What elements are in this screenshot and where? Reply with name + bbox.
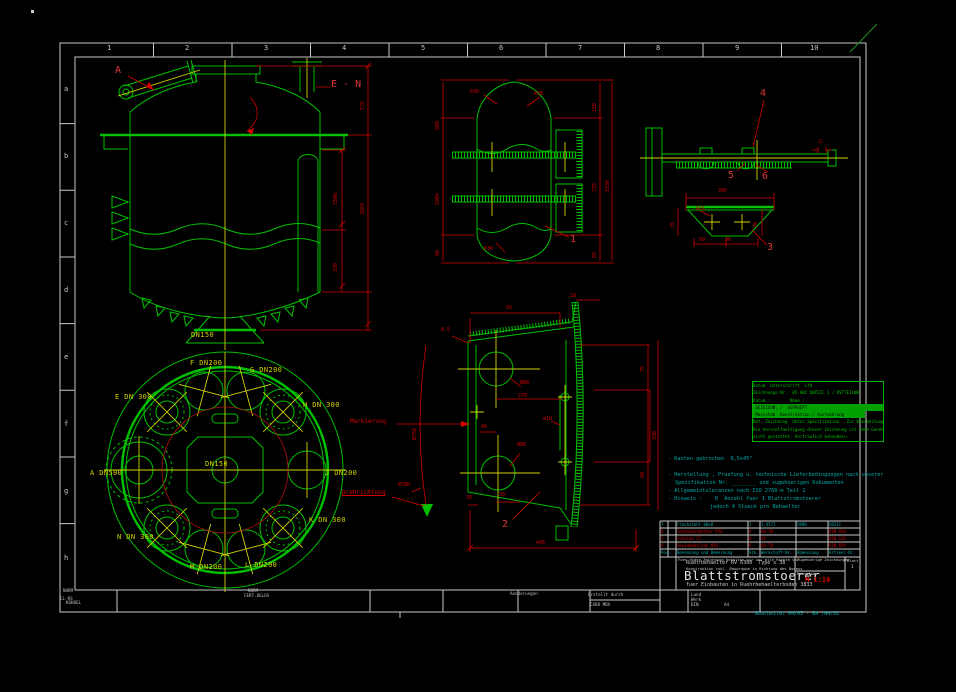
note-line: - Herstellung , Pruefung u. technische L…	[668, 471, 868, 479]
sheet-number: 1	[851, 566, 854, 571]
bom-cell: 8	[748, 535, 760, 542]
bom-cell: Flachstahl 60x8	[676, 521, 748, 528]
bom-cell: 8	[748, 528, 760, 535]
note-line: Spezifikation Nr. ________ und zugehoeri…	[668, 479, 868, 487]
bom-cell: 5880	[796, 521, 828, 528]
bom-cell: 1.4571	[760, 521, 796, 528]
bom-cell: DIN 934	[828, 528, 860, 535]
bom-cell: A4	[760, 535, 796, 542]
bom-cell	[796, 535, 828, 542]
note-line: - Kanten gebrochen 0,5x45°	[668, 455, 868, 463]
bom-cell: 7	[660, 521, 676, 528]
bom-cell: 8	[748, 542, 760, 549]
bom-cell: Scheibe 17	[676, 535, 748, 542]
approval-stamp: Datum Unterschrift LfdZeichnungs-Nr. 05-…	[752, 381, 884, 442]
bom-header-cell: Werkstoff-Nr.	[760, 549, 796, 557]
stamp-line: Zeichnungs-Nr. 05-ABC DWTEIL 1 / DVTTEIL…	[753, 389, 883, 396]
bom-header-cell: Stk.	[748, 549, 760, 557]
titleblock-related-drawings: Zugehoerige Zeichnungen	[797, 558, 850, 562]
stamp-line: Ref. Zeichnung Unter Spezifikation Zur B…	[753, 418, 883, 425]
bom-header-cell: Artikel-Nr.	[828, 549, 860, 557]
stamp-line: nicht gestattet. Vertraulich behandeln.	[753, 433, 883, 440]
bom-cell: 6	[660, 528, 676, 535]
drawing-subtitle: fuer Einbauten in Ruehrbehaelterboden 38…	[686, 583, 812, 588]
note-line: - Allgemeintoleranzen nach ISO 2768-m Te…	[668, 487, 868, 495]
bom-cell: 68211	[828, 521, 860, 528]
cad-drawing-sheet: DN150F DN200G DN200E DN 300H DN 300A DN5…	[0, 0, 956, 692]
bom-cell: DIN 939	[828, 542, 860, 549]
bom-row: 7Flachstahl 60x821.4571588068211	[660, 521, 860, 528]
bom-cell: 5	[660, 535, 676, 542]
bom-table: 7Flachstahl 60x821.45715880682116Sechska…	[660, 521, 860, 557]
corner-fold-line	[850, 24, 877, 52]
bom-header-cell: Benennung und Bemerkung	[676, 549, 748, 557]
stamp-line: GEZEICHN. / GEPRUEFT	[753, 404, 883, 411]
bom-header-cell: Abmessung	[796, 549, 828, 557]
bom-header-cell: Pos.	[660, 549, 676, 557]
stamp-line: Datum Unterschrift Lfd	[753, 382, 883, 389]
bom-cell: Sechskantmutter M16	[676, 528, 748, 535]
bom-cell: A4-70	[760, 528, 796, 535]
bom-cell: 2	[748, 521, 760, 528]
stamp-line: Massstab Konstruktion / Ausfuehrung	[753, 411, 865, 418]
note-line: jedoch 4 Stueck pro Behaelter	[668, 503, 868, 511]
stamp-line: Die Vervielfaeltigung dieser Zeichnung i…	[753, 426, 883, 433]
bom-cell: DIN 125	[828, 535, 860, 542]
bom-row: 5Scheibe 178A4DIN 125	[660, 535, 860, 542]
note-line: - Hinweis : 0 Anzahl fuer 1 Blattstromst…	[668, 495, 868, 503]
bom-cell: A4-70	[760, 542, 796, 549]
bom-cell: Gewindebolzen M16	[676, 542, 748, 549]
bom-cell	[796, 528, 828, 535]
scale-value: M 1:10	[805, 577, 830, 584]
notes-block: - Kanten gebrochen 0,5x45°- Herstellung …	[668, 455, 868, 511]
bom-row: 4Gewindebolzen M168A4-70DIN 939	[660, 542, 860, 549]
bom-cell	[796, 542, 828, 549]
sheet-label: Blatt	[847, 559, 858, 563]
bom-cell: 4	[660, 542, 676, 549]
stamp-line: Datum : Name :	[753, 397, 883, 404]
drawing-geometry	[0, 0, 956, 692]
bom-row: 6Sechskantmutter M168A4-70DIN 934	[660, 528, 860, 535]
bom-header-row: Pos.Benennung und BemerkungStk.Werkstoff…	[660, 549, 860, 557]
centerlines-yellow	[104, 58, 848, 592]
